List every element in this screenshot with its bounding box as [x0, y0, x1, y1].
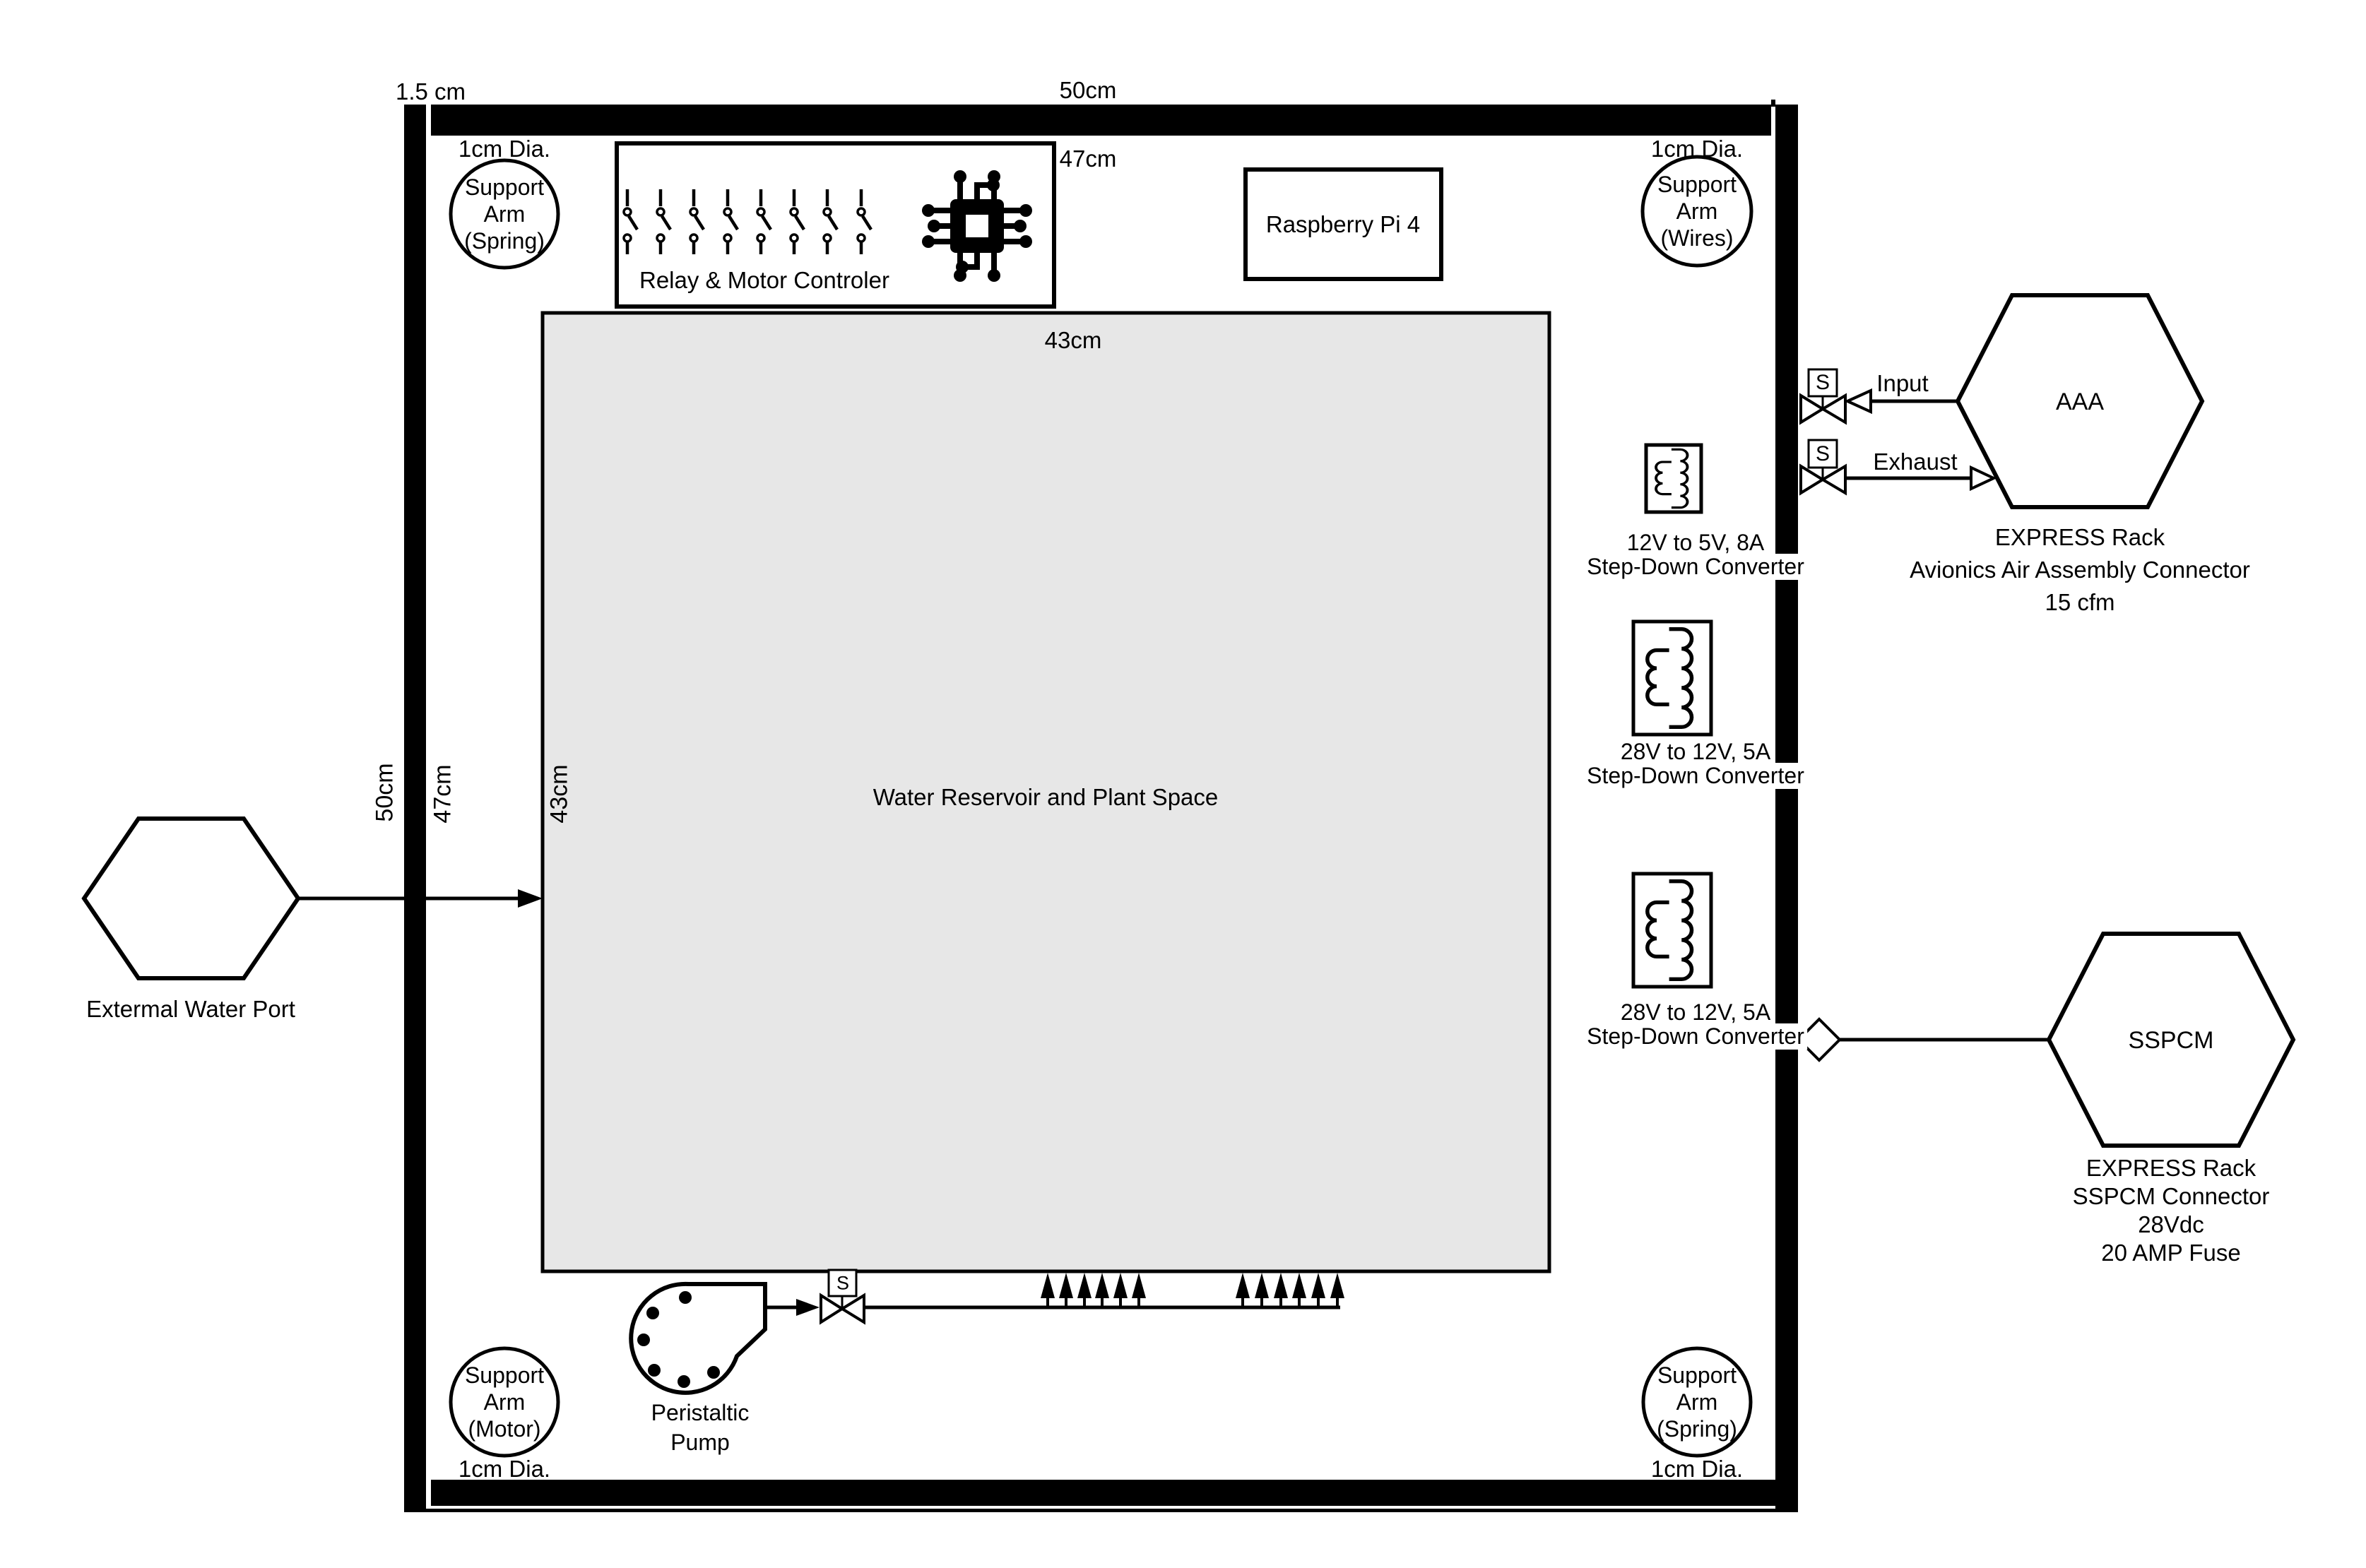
support-arm-top-left-label: SupportArm(Spring): [464, 174, 545, 254]
reservoir-height-label: 43cm: [546, 764, 574, 823]
raspberry-pi-label: Raspberry Pi 4: [1266, 212, 1420, 237]
sspcm-caption: EXPRESS RackSSPCM Connector28Vdc20 AMP F…: [2073, 1154, 2270, 1267]
relay-controller-label: Relay & Motor Controler: [639, 268, 889, 293]
support-arm-top-right-dia: 1cm Dia.: [1651, 136, 1743, 162]
peristaltic-pump-icon: [631, 1284, 765, 1393]
reservoir-label: Water Reservoir and Plant Space: [873, 785, 1219, 810]
frame-bottom-thin-line: [404, 1509, 1798, 1512]
frame-thickness-label: 1.5 cm: [396, 79, 466, 105]
converter-1: [1646, 445, 1701, 512]
inner-width-label: 47cm: [1060, 146, 1117, 172]
aaa-label: AAA: [2056, 389, 2104, 415]
converter-2-type: Step-Down Converter: [1584, 763, 1807, 789]
converter-1-type: Step-Down Converter: [1584, 554, 1807, 580]
input-label: Input: [1876, 371, 1928, 396]
irrigation-pipe: [865, 1273, 1344, 1307]
support-arm-bottom-left-label: SupportArm(Motor): [465, 1362, 544, 1442]
frame-right-bar: [1775, 105, 1798, 1512]
external-water-port-label: Extermal Water Port: [86, 997, 295, 1022]
external-water-port-hexagon: [84, 819, 298, 978]
spray-arrowheads: [1041, 1273, 1344, 1298]
converter-3: [1633, 874, 1711, 987]
converter-3-spec: 28V to 12V, 5A: [1618, 999, 1773, 1026]
sspcm-label: SSPCM: [2129, 1028, 2214, 1054]
support-arm-top-right-label: SupportArm(Wires): [1657, 171, 1737, 251]
frame-left-bar: [404, 105, 426, 1509]
support-arm-bottom-left-dia: 1cm Dia.: [459, 1456, 550, 1482]
converter-3-type: Step-Down Converter: [1584, 1023, 1807, 1050]
aaa-caption: EXPRESS RackAvionics Air Assembly Connec…: [1910, 521, 2250, 619]
converter-2-spec: 28V to 12V, 5A: [1618, 739, 1773, 765]
reservoir-width-label: 43cm: [1045, 328, 1102, 353]
exhaust-label: Exhaust: [1873, 449, 1957, 475]
frame-corner-tick: [1771, 100, 1775, 107]
growth-chamber-schematic: 1.5 cm 50cm 47cm 50cm 47cm 43cm 43cm Wat…: [0, 0, 2366, 1568]
inner-height-label: 47cm: [430, 764, 457, 823]
spray-arrows: [1048, 1297, 1337, 1307]
frame-bottom-bar: [431, 1480, 1798, 1506]
pump-outlet-arrow: [765, 1299, 820, 1316]
peristaltic-pump-label: PeristalticPump: [651, 1398, 750, 1457]
outer-width-label: 50cm: [1060, 78, 1117, 103]
pump-valve-s-label: S: [836, 1273, 849, 1295]
input-valve-s-label: S: [1816, 371, 1830, 395]
support-arm-bottom-right-label: SupportArm(Spring): [1657, 1362, 1737, 1442]
support-arm-bottom-right-dia: 1cm Dia.: [1651, 1456, 1743, 1482]
support-arm-top-left-dia: 1cm Dia.: [459, 136, 550, 162]
outer-height-label: 50cm: [372, 763, 399, 821]
exhaust-valve-s-label: S: [1816, 442, 1830, 466]
converter-2: [1633, 622, 1711, 735]
frame-top-bar: [431, 105, 1771, 136]
converter-1-spec: 12V to 5V, 8A: [1624, 530, 1768, 556]
